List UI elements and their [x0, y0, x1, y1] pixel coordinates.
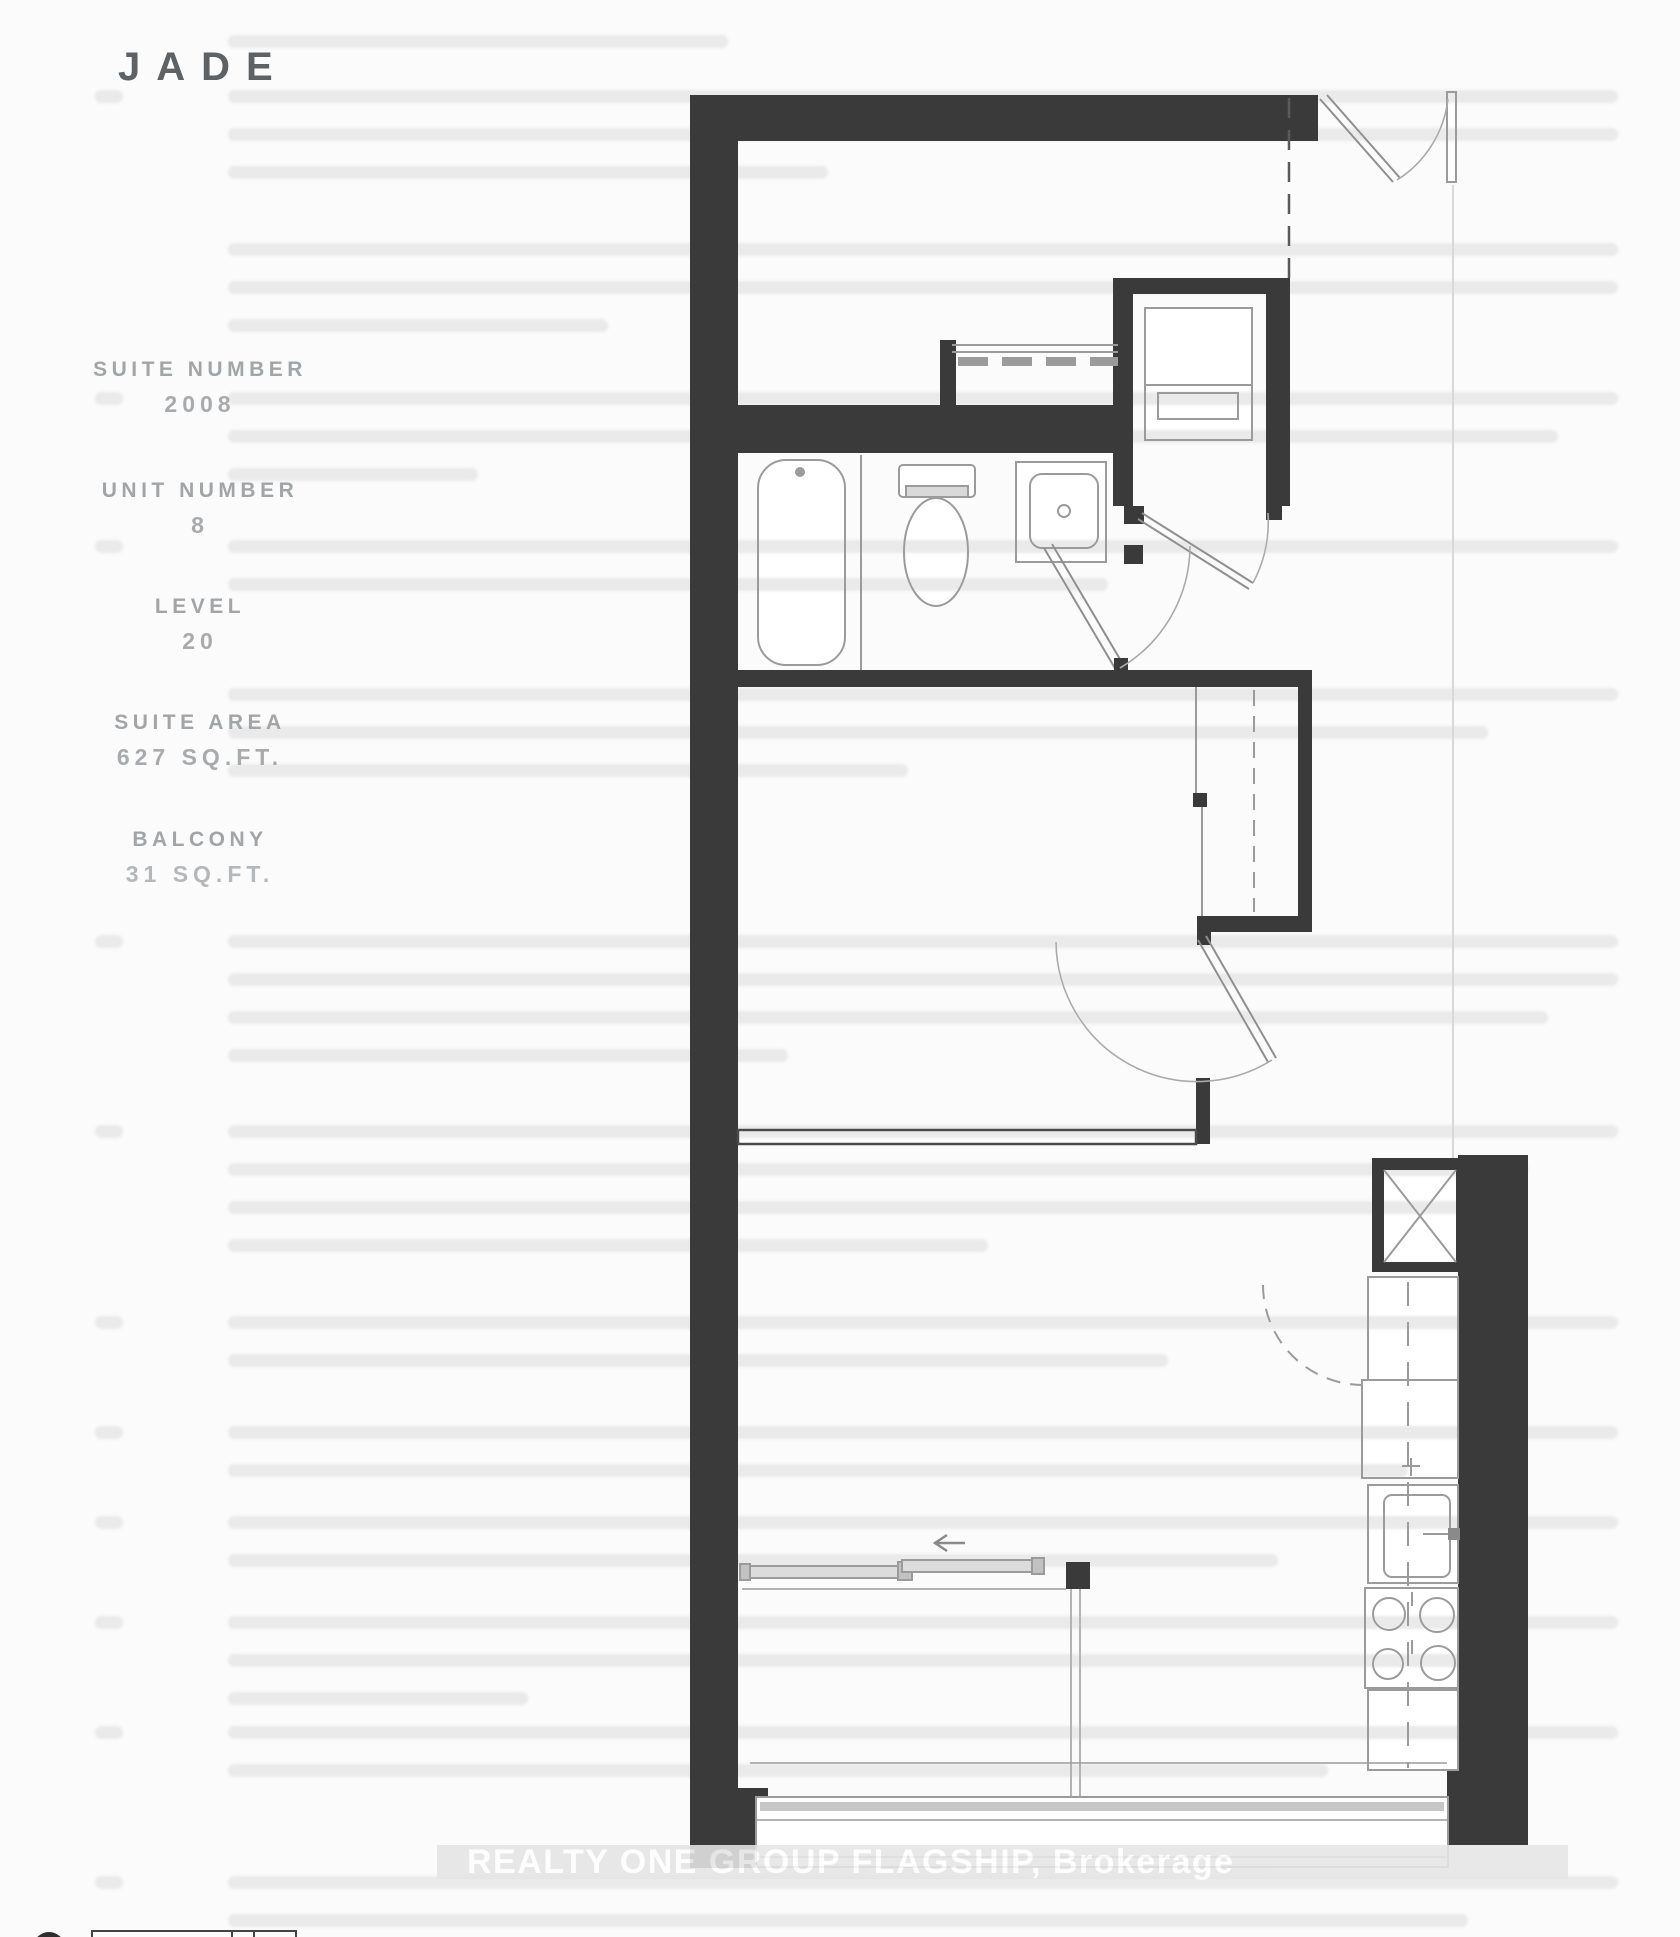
washer-dryer: [1145, 308, 1252, 440]
page-title: JADE: [118, 45, 438, 90]
counter-cabinet: [1362, 1380, 1458, 1478]
brokerage-watermark-text: REALTY ONE GROUP FLAGSHIP, Brokerage: [437, 1843, 1235, 1882]
refrigerator-icon: [1368, 1277, 1458, 1380]
entry-door: [1320, 92, 1456, 182]
brokerage-watermark: REALTY ONE GROUP FLAGSHIP, Brokerage: [437, 1845, 1568, 1879]
suite-number-label: SUITE NUMBER: [30, 358, 370, 382]
level-value: 20: [30, 628, 370, 655]
cooktop-icon: [1365, 1588, 1458, 1688]
kitchen-sink-icon: [1368, 1485, 1460, 1583]
bathroom-door: [1044, 544, 1190, 672]
laundry-door: [1138, 513, 1268, 589]
unit-number-label: UNIT NUMBER: [30, 479, 370, 503]
lower-counter: [1368, 1690, 1458, 1770]
suite-area-block: SUITE AREA 627 SQ.FT.: [30, 711, 370, 771]
suite-number-value: 2008: [30, 391, 370, 418]
level-label: LEVEL: [30, 595, 370, 619]
kitchen: [1263, 1277, 1460, 1770]
balcony: [740, 1535, 1448, 1867]
vanity-sink-icon: [1016, 462, 1106, 562]
page-edge-partial-shapes: [33, 1931, 296, 1937]
appliance-dashed-arc: [1263, 1285, 1363, 1385]
level-block: LEVEL 20: [30, 595, 370, 655]
balcony-value: 31 SQ.FT.: [30, 861, 370, 888]
suite-area-value: 627 SQ.FT.: [30, 744, 370, 771]
suite-number-block: SUITE NUMBER 2008: [30, 358, 370, 418]
balcony-divider: [1071, 1589, 1080, 1797]
sliding-door: [740, 1558, 1044, 1580]
balcony-area-block: BALCONY 31 SQ.FT.: [30, 828, 370, 888]
floor-plan: [0, 0, 1680, 1937]
unit-number-value: 8: [30, 512, 370, 539]
pantry-shaft: [1372, 1158, 1468, 1272]
scanned-floorplan-page: JADE SUITE NUMBER 2008 UNIT NUMBER 8 LEV…: [0, 0, 1680, 1937]
bedroom-closet: [952, 345, 1118, 366]
balcony-label: BALCONY: [30, 828, 370, 852]
unit-number-block: UNIT NUMBER 8: [30, 479, 370, 539]
toilet-icon: [899, 465, 975, 606]
bathroom: [758, 455, 1106, 670]
bathtub-icon: [758, 460, 845, 665]
hall-closet-door: [1056, 936, 1276, 1082]
slide-direction-arrow: [935, 1535, 965, 1551]
suite-area-label: SUITE AREA: [30, 711, 370, 735]
kitchen-half-wall: [738, 1130, 1196, 1144]
